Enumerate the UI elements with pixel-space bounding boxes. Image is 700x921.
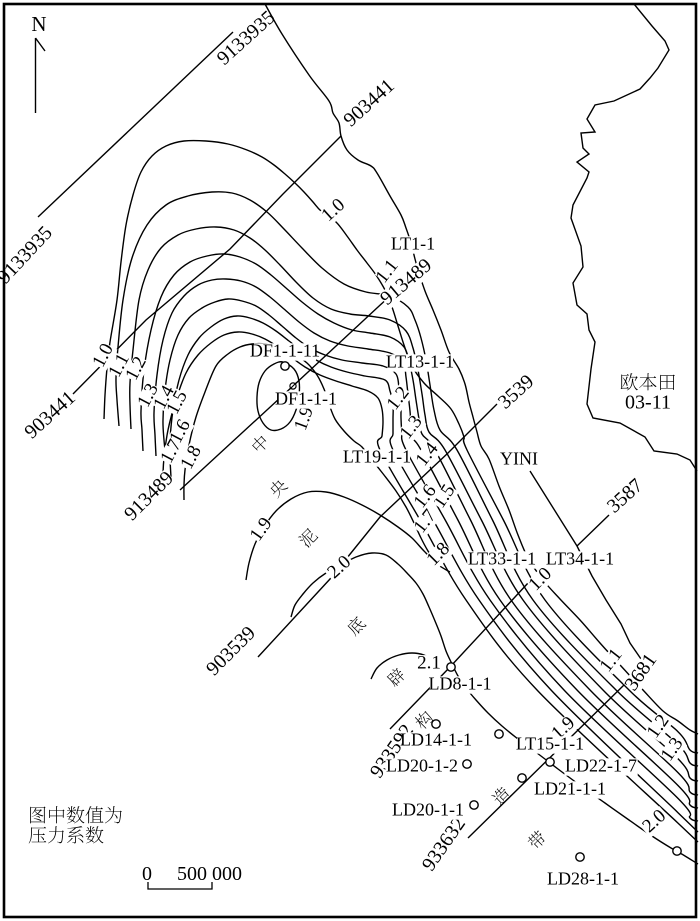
svg-text:03-11: 03-11 bbox=[625, 392, 671, 414]
svg-text:DF1-1-11: DF1-1-11 bbox=[250, 340, 320, 360]
svg-text:LT15-1-1: LT15-1-1 bbox=[516, 733, 584, 753]
svg-text:LT13-1-1: LT13-1-1 bbox=[386, 351, 454, 371]
svg-text:LD14-1-1: LD14-1-1 bbox=[400, 729, 472, 749]
svg-text:0: 0 bbox=[142, 863, 152, 885]
svg-text:DF1-1-1: DF1-1-1 bbox=[275, 388, 337, 408]
svg-text:LT34-1-1: LT34-1-1 bbox=[546, 548, 614, 568]
svg-text:LT33-1-1: LT33-1-1 bbox=[468, 548, 536, 568]
svg-text:LD20-1-2: LD20-1-2 bbox=[386, 755, 458, 775]
svg-text:2.1: 2.1 bbox=[417, 652, 441, 673]
svg-text:LD21-1-1: LD21-1-1 bbox=[534, 778, 606, 798]
svg-text:LD28-1-1: LD28-1-1 bbox=[547, 868, 619, 888]
svg-text:LD22-1-7: LD22-1-7 bbox=[565, 755, 637, 775]
svg-text:YINI: YINI bbox=[500, 448, 538, 468]
svg-text:LD20-1-1: LD20-1-1 bbox=[392, 799, 464, 819]
svg-text:LT1-1: LT1-1 bbox=[391, 233, 435, 253]
svg-text:LT19-1-1: LT19-1-1 bbox=[343, 446, 411, 466]
svg-text:LD8-1-1: LD8-1-1 bbox=[429, 673, 492, 693]
svg-text:N: N bbox=[31, 12, 46, 36]
svg-text:500 000: 500 000 bbox=[177, 863, 242, 885]
